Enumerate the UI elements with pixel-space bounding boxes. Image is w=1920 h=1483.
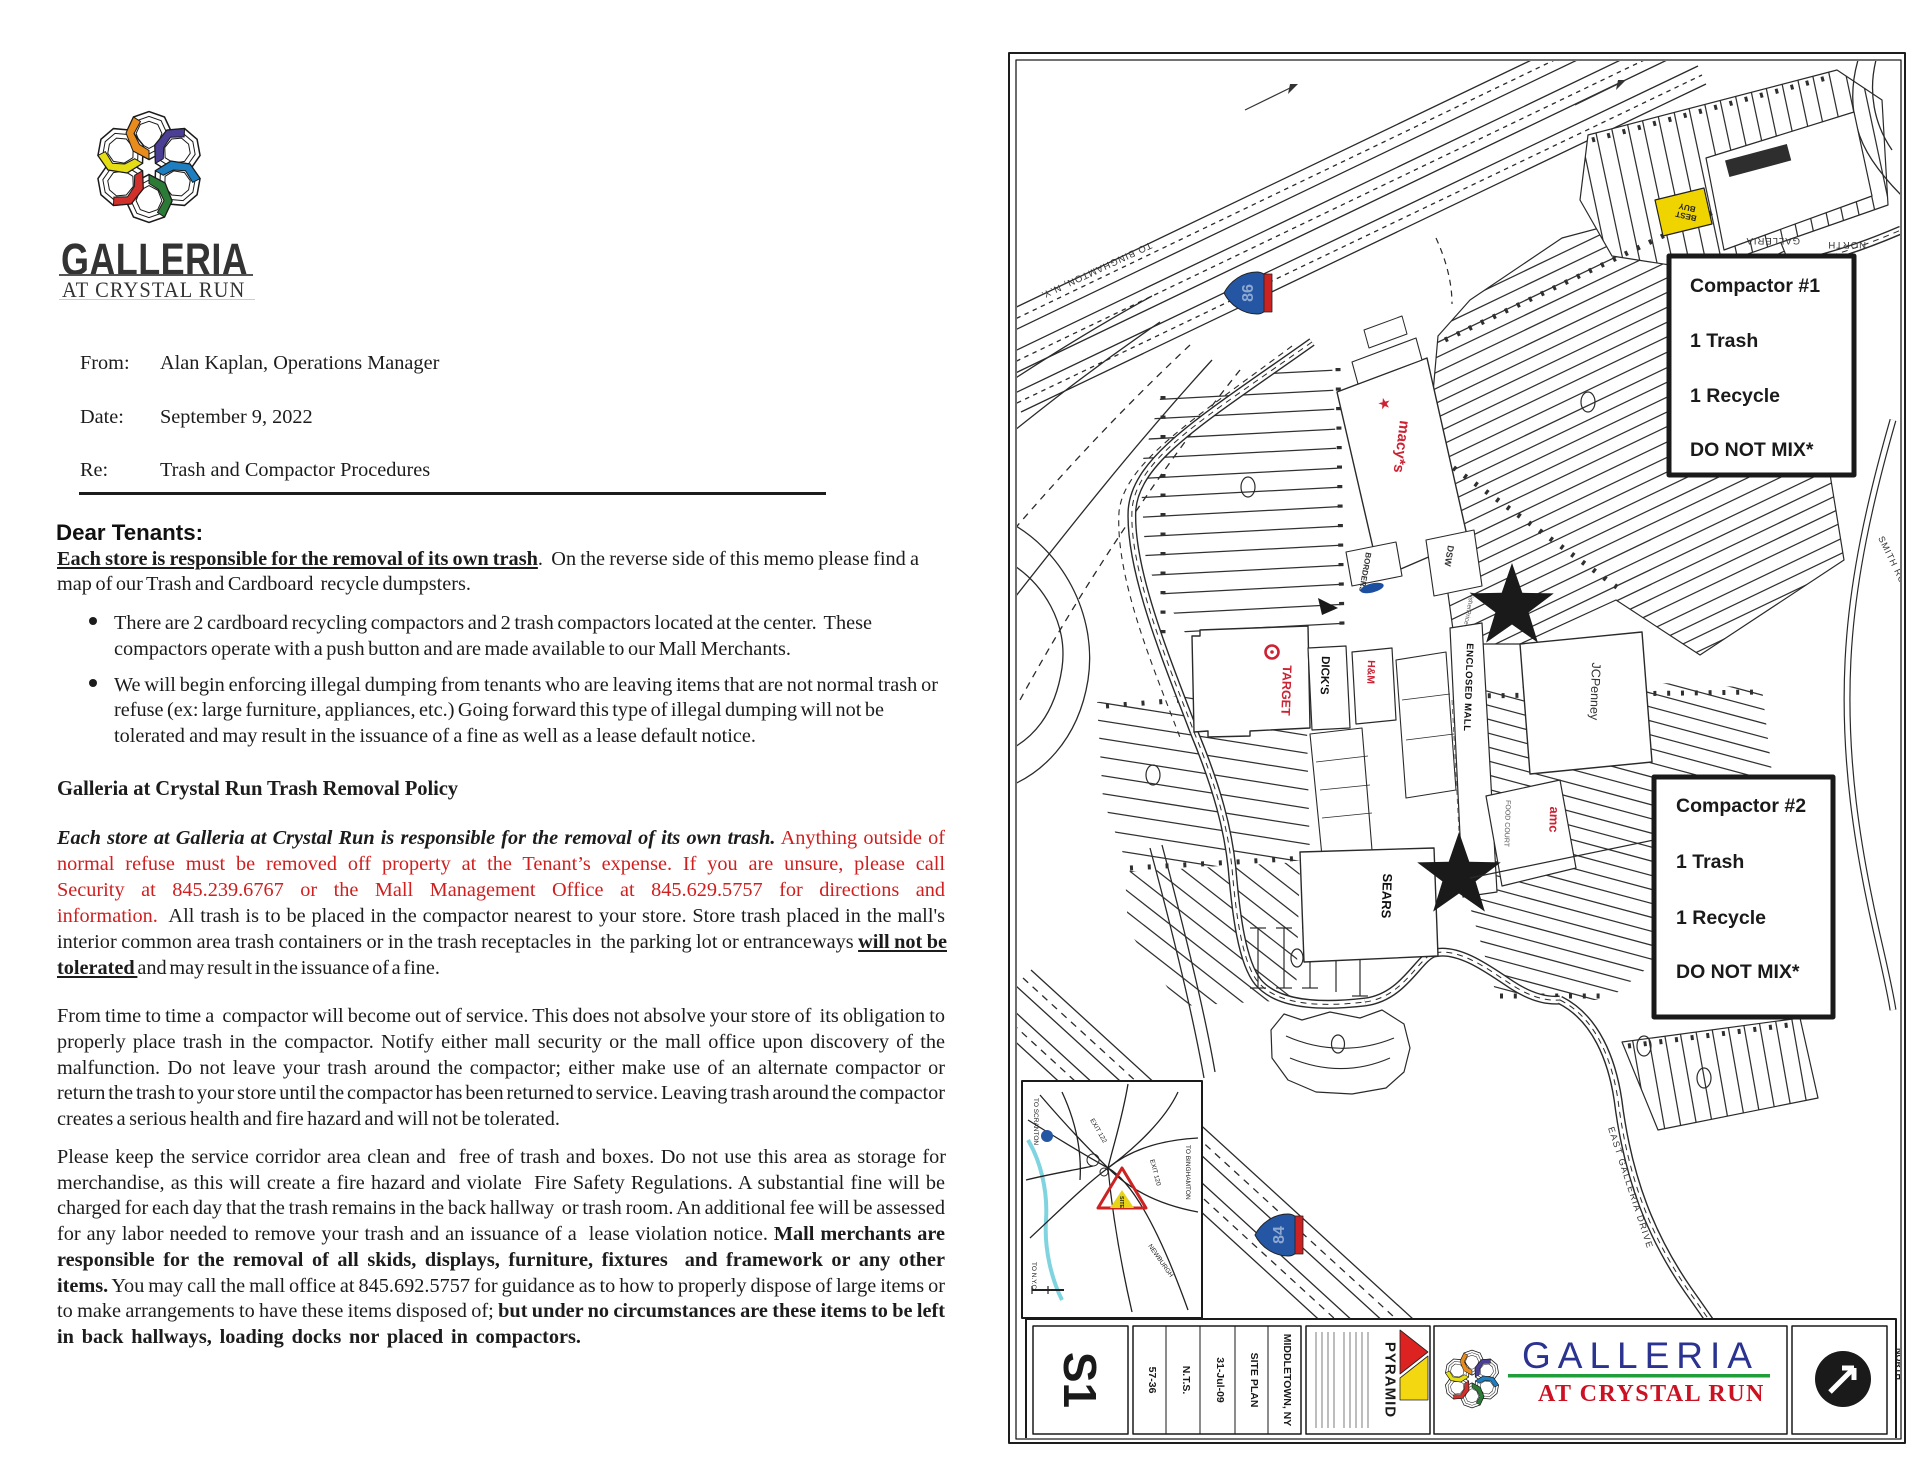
svg-text:SITE: SITE xyxy=(1118,1196,1124,1209)
svg-text:H&M: H&M xyxy=(1364,660,1377,685)
svg-text:amc: amc xyxy=(1546,806,1562,833)
svg-text:EAST GALLERIA DRIVE: EAST GALLERIA DRIVE xyxy=(1606,1126,1655,1251)
svg-text:1 Recycle: 1 Recycle xyxy=(1676,907,1766,929)
svg-text:TO SCRANTON: TO SCRANTON xyxy=(1032,1098,1039,1145)
svg-text:TO N.Y.C.: TO N.Y.C. xyxy=(1030,1262,1037,1291)
svg-text:S1: S1 xyxy=(1054,1352,1106,1408)
svg-text:DO NOT MIX*: DO NOT MIX* xyxy=(1690,439,1814,461)
svg-text:SEARS: SEARS xyxy=(1379,873,1396,919)
svg-text:1 Trash: 1 Trash xyxy=(1676,851,1744,873)
svg-text:86: 86 xyxy=(1240,284,1257,302)
svg-text:57-36: 57-36 xyxy=(1146,1367,1158,1394)
svg-text:TARGET: TARGET xyxy=(1278,665,1294,716)
svg-text:NORTH: NORTH xyxy=(1827,239,1866,250)
svg-text:DICK'S: DICK'S xyxy=(1318,656,1331,695)
svg-text:1 Trash: 1 Trash xyxy=(1690,330,1758,352)
svg-text:DO NOT MIX*: DO NOT MIX* xyxy=(1676,961,1800,983)
svg-text:GALLERIA: GALLERIA xyxy=(1522,1335,1759,1376)
svg-text:FisherPrice: FisherPrice xyxy=(1462,592,1475,626)
svg-text:Compactor #2: Compactor #2 xyxy=(1676,795,1806,817)
svg-text:N.T.S.: N.T.S. xyxy=(1180,1366,1192,1395)
svg-text:31-Jul-09: 31-Jul-09 xyxy=(1214,1357,1226,1403)
svg-text:TO BINGHAMTON: TO BINGHAMTON xyxy=(1184,1145,1191,1200)
svg-text:MIDDLETOWN, NY: MIDDLETOWN, NY xyxy=(1281,1334,1293,1427)
svg-text:84: 84 xyxy=(1271,1226,1288,1244)
svg-text:AT CRYSTAL RUN: AT CRYSTAL RUN xyxy=(1538,1381,1765,1407)
svg-text:NORTH: NORTH xyxy=(1894,1348,1904,1380)
svg-text:GALLERIA: GALLERIA xyxy=(1746,235,1800,246)
svg-text:Compactor #1: Compactor #1 xyxy=(1690,275,1820,297)
svg-text:JCPenney: JCPenney xyxy=(1587,662,1603,721)
svg-text:1 Recycle: 1 Recycle xyxy=(1690,385,1780,407)
svg-text:SITE PLAN: SITE PLAN xyxy=(1248,1353,1260,1408)
svg-text:PYRAMID: PYRAMID xyxy=(1382,1342,1399,1418)
